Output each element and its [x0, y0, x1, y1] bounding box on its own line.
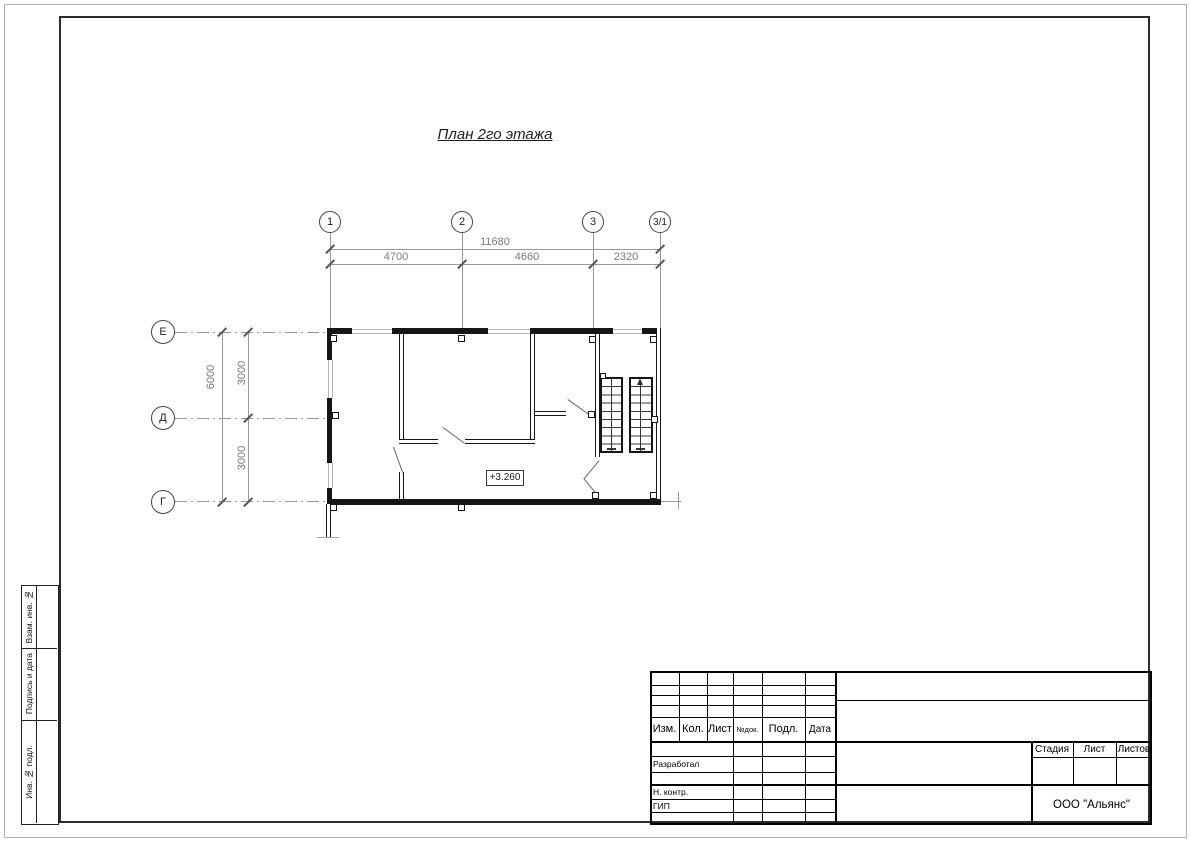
- wall-joint-mark: [600, 373, 606, 379]
- tb-stage-label: Стадия: [1031, 741, 1073, 757]
- tb-line: [650, 685, 835, 686]
- stair-direction-arrow: [637, 378, 643, 385]
- plan-title: План 2го этажа: [420, 126, 570, 143]
- axis-ext-tick-right: [678, 492, 679, 509]
- axis-label-G: Г: [160, 496, 166, 508]
- tb-row-gip: ГИП: [650, 799, 733, 812]
- dim-width-seg-1: 4700: [366, 251, 426, 263]
- axis-label-3-1: 3/1: [653, 217, 667, 228]
- wall-joint-mark: [458, 504, 465, 511]
- axis-bubble-G: Г: [151, 490, 175, 514]
- drawing-sheet: План 2го этажа 1 2 3 3/1 Е Д Г 11680 470…: [0, 0, 1191, 842]
- dim-line-total-height: [222, 332, 223, 502]
- window: [352, 329, 392, 334]
- tb-company-name: ООО "Альянс": [1031, 784, 1152, 825]
- stair-start-tick: [636, 448, 645, 450]
- dim-height-seg-1: 3000: [236, 343, 248, 403]
- wall-joint-mark: [650, 336, 657, 343]
- tb-col-podl: Подл.: [762, 717, 805, 741]
- dim-total-height: 6000: [205, 347, 217, 407]
- wall-joint-mark: [330, 504, 337, 511]
- wall-bottom: [327, 499, 661, 505]
- axis-bubble-3-1: 3/1: [649, 211, 671, 233]
- axis-line-G: [175, 501, 327, 502]
- strip-divider: [36, 586, 37, 823]
- window: [613, 329, 642, 334]
- axis-label-D: Д: [159, 412, 166, 424]
- axis-label-1: 1: [327, 216, 333, 228]
- wall-joint-mark: [651, 416, 658, 423]
- wall-interior-horizontal-b2: [465, 439, 535, 444]
- wall-joint-mark: [650, 492, 657, 499]
- tb-border: [650, 671, 1152, 673]
- window: [328, 463, 333, 488]
- wall-door-stub: [399, 472, 404, 499]
- wall-interior-vertical-c: [530, 334, 535, 439]
- side-label-inv: Инв. № подл.: [24, 745, 34, 799]
- tb-line: [835, 671, 837, 825]
- wall-joint-mark: [330, 335, 337, 342]
- wall-left-segment: [327, 398, 332, 463]
- tb-row-razrabotal: Разработал: [650, 756, 733, 772]
- wall-joint-mark: [458, 335, 465, 342]
- tb-col-izm: Изм.: [650, 717, 679, 741]
- wall-joint-mark: [592, 492, 599, 499]
- dim-height-seg-2: 3000: [236, 428, 248, 488]
- wall-top-segment: [530, 328, 613, 334]
- tb-line: [650, 812, 835, 813]
- axis-bubble-1: 1: [319, 211, 341, 233]
- tb-line: [650, 772, 835, 773]
- axis-label-3: 3: [590, 216, 596, 228]
- tb-row-nkontr: Н. контр.: [650, 784, 733, 799]
- dim-line-total-width: [330, 249, 660, 250]
- side-attribute-strip: Взам. инв. № Подпись и дата Инв. № подл.: [21, 585, 59, 825]
- wall-left-segment: [327, 328, 332, 360]
- tb-col-data: Дата: [805, 717, 835, 741]
- tb-line: [835, 700, 1152, 701]
- tb-col-ndok: №док.: [733, 717, 762, 741]
- axis-line-3: [593, 233, 594, 328]
- side-label-cell: Подпись и дата: [22, 648, 36, 720]
- tb-col-list: Лист: [707, 717, 733, 741]
- window: [328, 360, 333, 398]
- wall-interior-horizontal-d: [535, 411, 566, 416]
- tb-sheet-label: Лист: [1073, 741, 1116, 757]
- side-label-vzam: Взам. инв. №: [24, 590, 34, 644]
- wall-top-segment: [392, 328, 488, 334]
- wall-joint-mark: [589, 336, 596, 343]
- axis-label-2: 2: [459, 216, 465, 228]
- axis-line-E: [175, 332, 327, 333]
- wall-interior-vertical-a: [399, 334, 404, 443]
- side-label-cell: Инв. № подл.: [22, 720, 36, 823]
- axis-bubble-2: 2: [451, 211, 473, 233]
- axis-label-E: Е: [159, 326, 166, 338]
- tb-sheets-label: Листов: [1116, 741, 1152, 757]
- dim-width-seg-2: 4660: [497, 251, 557, 263]
- tb-line: [650, 695, 835, 696]
- axis-line-2: [462, 233, 463, 328]
- wall-interior-horizontal-b1: [399, 439, 438, 444]
- axis-line-D: [175, 418, 327, 419]
- axis-bubble-D: Д: [151, 406, 175, 430]
- axis-ext-tick-bottom-left: [317, 537, 339, 538]
- stair-walk-line-left: [611, 379, 612, 451]
- side-label-podpis: Подпись и дата: [24, 653, 34, 714]
- stair-start-tick: [607, 448, 616, 450]
- stair-walk-line-right: [640, 384, 641, 451]
- elevation-mark: +3.260: [486, 470, 524, 486]
- side-label-cell: Взам. инв. №: [22, 586, 36, 648]
- wall-joint-mark: [588, 411, 595, 418]
- dim-width-seg-3: 2320: [596, 251, 656, 263]
- tb-col-kol: Кол.: [679, 717, 707, 741]
- wall-joint-mark: [332, 412, 339, 419]
- tb-line: [1031, 757, 1152, 758]
- dim-total-width: 11680: [465, 236, 525, 248]
- axis-bubble-3: 3: [582, 211, 604, 233]
- axis-bubble-E: Е: [151, 320, 175, 344]
- window: [488, 329, 530, 334]
- tb-line: [650, 705, 835, 706]
- dim-line-width-segments: [330, 264, 660, 265]
- title-block: Изм. Кол. Лист №док. Подл. Дата Разработ…: [650, 671, 1152, 825]
